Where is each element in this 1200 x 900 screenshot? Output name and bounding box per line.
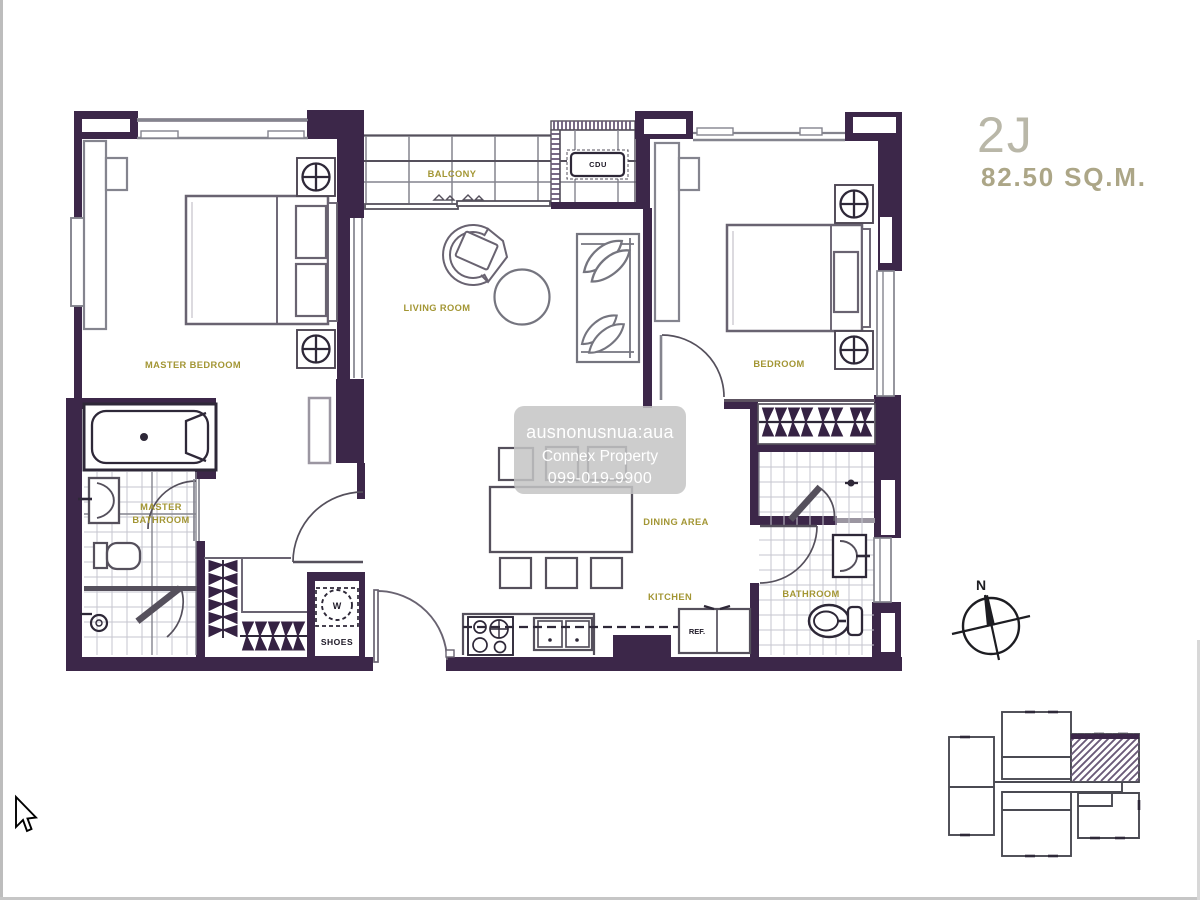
svg-text:BATHROOM: BATHROOM: [782, 589, 839, 599]
svg-text:CDU: CDU: [589, 160, 607, 169]
svg-text:DINING AREA: DINING AREA: [643, 517, 709, 527]
svg-text:SHOES: SHOES: [321, 637, 353, 647]
svg-text:REF.: REF.: [689, 627, 705, 636]
svg-text:BATHROOM: BATHROOM: [132, 515, 189, 525]
svg-text:ausnonusnua:aua: ausnonusnua:aua: [526, 422, 674, 442]
svg-text:N: N: [976, 577, 986, 593]
svg-text:099-019-9900: 099-019-9900: [548, 470, 652, 487]
svg-text:2J: 2J: [977, 107, 1034, 163]
svg-text:MASTER BEDROOM: MASTER BEDROOM: [145, 360, 241, 370]
svg-text:BALCONY: BALCONY: [428, 169, 477, 179]
svg-text:LIVING ROOM: LIVING ROOM: [404, 303, 471, 313]
svg-text:BEDROOM: BEDROOM: [753, 359, 804, 369]
svg-text:MASTER: MASTER: [140, 502, 182, 512]
svg-text:KITCHEN: KITCHEN: [648, 592, 692, 602]
svg-text:82.50 SQ.M.: 82.50 SQ.M.: [981, 162, 1147, 192]
svg-text:Connex Property: Connex Property: [542, 448, 659, 465]
svg-text:W: W: [333, 601, 342, 611]
